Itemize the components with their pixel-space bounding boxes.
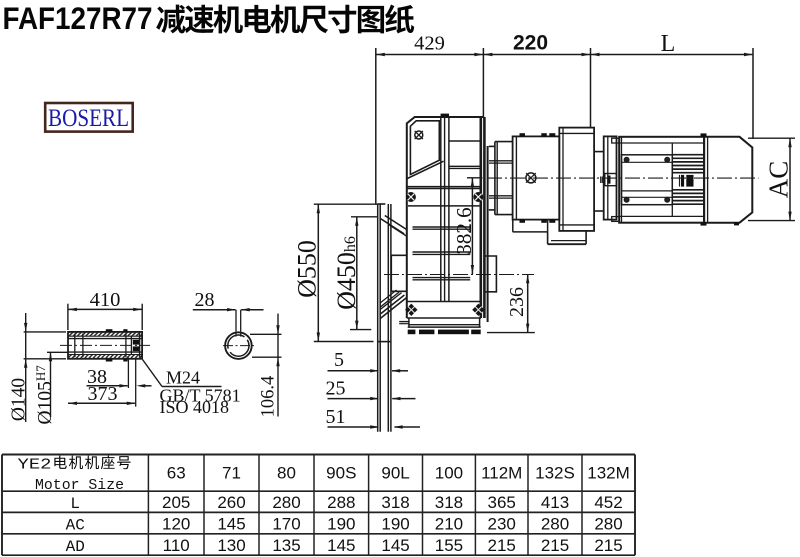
svg-text:106.4: 106.4	[259, 376, 279, 418]
svg-text:205: 205	[162, 493, 190, 512]
svg-text:AC: AC	[66, 517, 85, 535]
svg-text:382.6: 382.6	[452, 207, 476, 254]
svg-text:170: 170	[272, 515, 300, 534]
svg-text:132S: 132S	[535, 464, 575, 483]
svg-text:318: 318	[435, 493, 463, 512]
svg-text:318: 318	[381, 493, 409, 512]
svg-text:215: 215	[541, 536, 569, 555]
svg-text:M24: M24	[166, 368, 200, 388]
svg-text:280: 280	[541, 515, 569, 534]
svg-text:145: 145	[327, 536, 355, 555]
svg-text:410: 410	[90, 289, 121, 311]
svg-text:452: 452	[594, 493, 622, 512]
svg-text:AD: AD	[66, 538, 85, 556]
svg-text:190: 190	[327, 515, 355, 534]
svg-text:90L: 90L	[381, 464, 409, 483]
svg-text:429: 429	[414, 33, 445, 55]
svg-text:112M: 112M	[481, 464, 522, 483]
svg-text:135: 135	[272, 536, 300, 555]
svg-text:220: 220	[513, 32, 548, 55]
svg-text:145: 145	[217, 515, 245, 534]
svg-text:YE2: YE2	[18, 457, 52, 474]
svg-text:120: 120	[162, 515, 190, 534]
svg-text:145: 145	[381, 536, 409, 555]
svg-text:132M: 132M	[587, 464, 630, 483]
svg-text:100: 100	[435, 464, 463, 483]
svg-text:260: 260	[217, 493, 245, 512]
svg-text:25: 25	[326, 377, 346, 399]
svg-text:280: 280	[272, 493, 300, 512]
svg-text:288: 288	[327, 493, 355, 512]
svg-text:110: 110	[163, 536, 190, 555]
svg-text:365: 365	[488, 493, 516, 512]
svg-text:90S: 90S	[326, 464, 356, 483]
svg-text:373: 373	[88, 383, 118, 405]
svg-text:130: 130	[217, 536, 245, 555]
svg-text:71: 71	[222, 464, 241, 483]
svg-text:230: 230	[488, 515, 516, 534]
svg-text:80: 80	[277, 464, 296, 483]
svg-text:Motor Size: Motor Size	[35, 478, 124, 494]
svg-text:BOSERL: BOSERL	[48, 103, 129, 132]
svg-text:51: 51	[326, 406, 346, 428]
svg-text:210: 210	[435, 515, 463, 534]
svg-text:236: 236	[506, 287, 528, 317]
svg-text:280: 280	[594, 515, 622, 534]
svg-text:AC: AC	[764, 161, 794, 199]
svg-text:ISO 4018: ISO 4018	[160, 397, 230, 417]
svg-text:155: 155	[435, 536, 463, 555]
svg-text:Ø140: Ø140	[9, 378, 30, 421]
svg-text:215: 215	[488, 536, 516, 555]
svg-text:FAF127R77: FAF127R77	[3, 0, 153, 36]
svg-text:L: L	[70, 495, 80, 513]
svg-text:Ø550: Ø550	[293, 240, 322, 298]
svg-text:63: 63	[167, 464, 186, 483]
svg-text:5: 5	[334, 349, 344, 371]
svg-text:190: 190	[381, 515, 409, 534]
svg-text:215: 215	[594, 536, 622, 555]
svg-text:28: 28	[195, 289, 215, 311]
svg-text:L: L	[661, 31, 676, 57]
svg-text:413: 413	[541, 493, 569, 512]
